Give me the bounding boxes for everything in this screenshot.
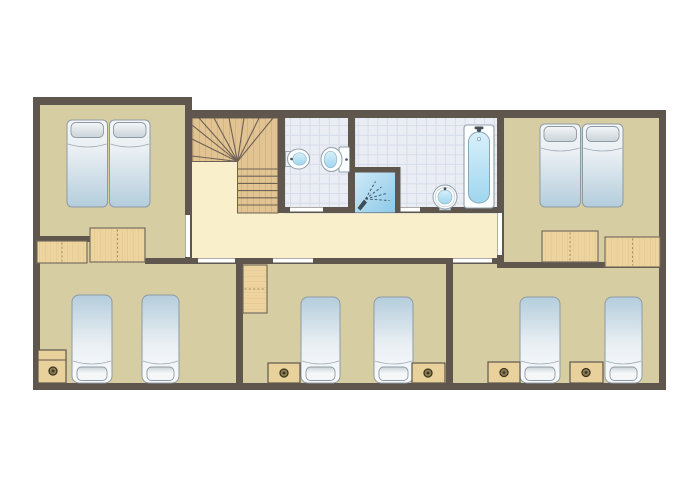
wc-toilet (321, 147, 350, 172)
outer-wall-top-left (33, 97, 192, 105)
single-bed-bottom-right-1 (520, 297, 560, 383)
door-bedroom-top-left (186, 215, 191, 257)
nightstand-bottom-middle-2 (412, 363, 445, 383)
single-bed-bottom-left-2 (142, 295, 179, 383)
floor-plan (0, 0, 700, 500)
wardrobe-top-left-1 (37, 241, 87, 263)
bathroom-sink (433, 185, 457, 210)
shower (351, 167, 401, 213)
wardrobe-bottom-middle (243, 265, 267, 313)
door-bedroom-bottom-middle (273, 259, 313, 263)
nightstand-bottom-right-2 (570, 362, 603, 383)
wc-sink (286, 149, 310, 169)
door-wc (290, 208, 323, 212)
wall-bottom-divider-left (236, 258, 243, 390)
wardrobe-top-right-2 (605, 237, 660, 267)
nightstand-bottom-right-1 (488, 362, 520, 383)
wardrobe-top-left-2 (90, 228, 145, 262)
single-bed-bottom-right-2 (605, 297, 642, 383)
wall-bottom-divider-right (446, 260, 453, 390)
outer-wall-bottom (33, 383, 666, 390)
door-bedroom-top-right (498, 213, 503, 255)
outer-wall-top-right (185, 110, 666, 118)
nightstand-bottom-middle-1 (268, 363, 300, 383)
bottom-bedrooms-floor (40, 258, 659, 383)
wall-stairs-wc (278, 116, 285, 213)
nightstand-bottom-left (38, 350, 66, 383)
bathtub (464, 125, 494, 208)
single-bed-bottom-middle-2 (374, 297, 413, 383)
door-bedroom-bottom-right (453, 259, 492, 263)
floor-plan-svg (0, 0, 700, 500)
single-bed-bottom-middle-1 (301, 297, 340, 383)
single-bed-bottom-left-1 (72, 295, 112, 383)
wardrobe-top-right-1 (542, 231, 598, 262)
door-bedroom-bottom-left (198, 259, 235, 263)
